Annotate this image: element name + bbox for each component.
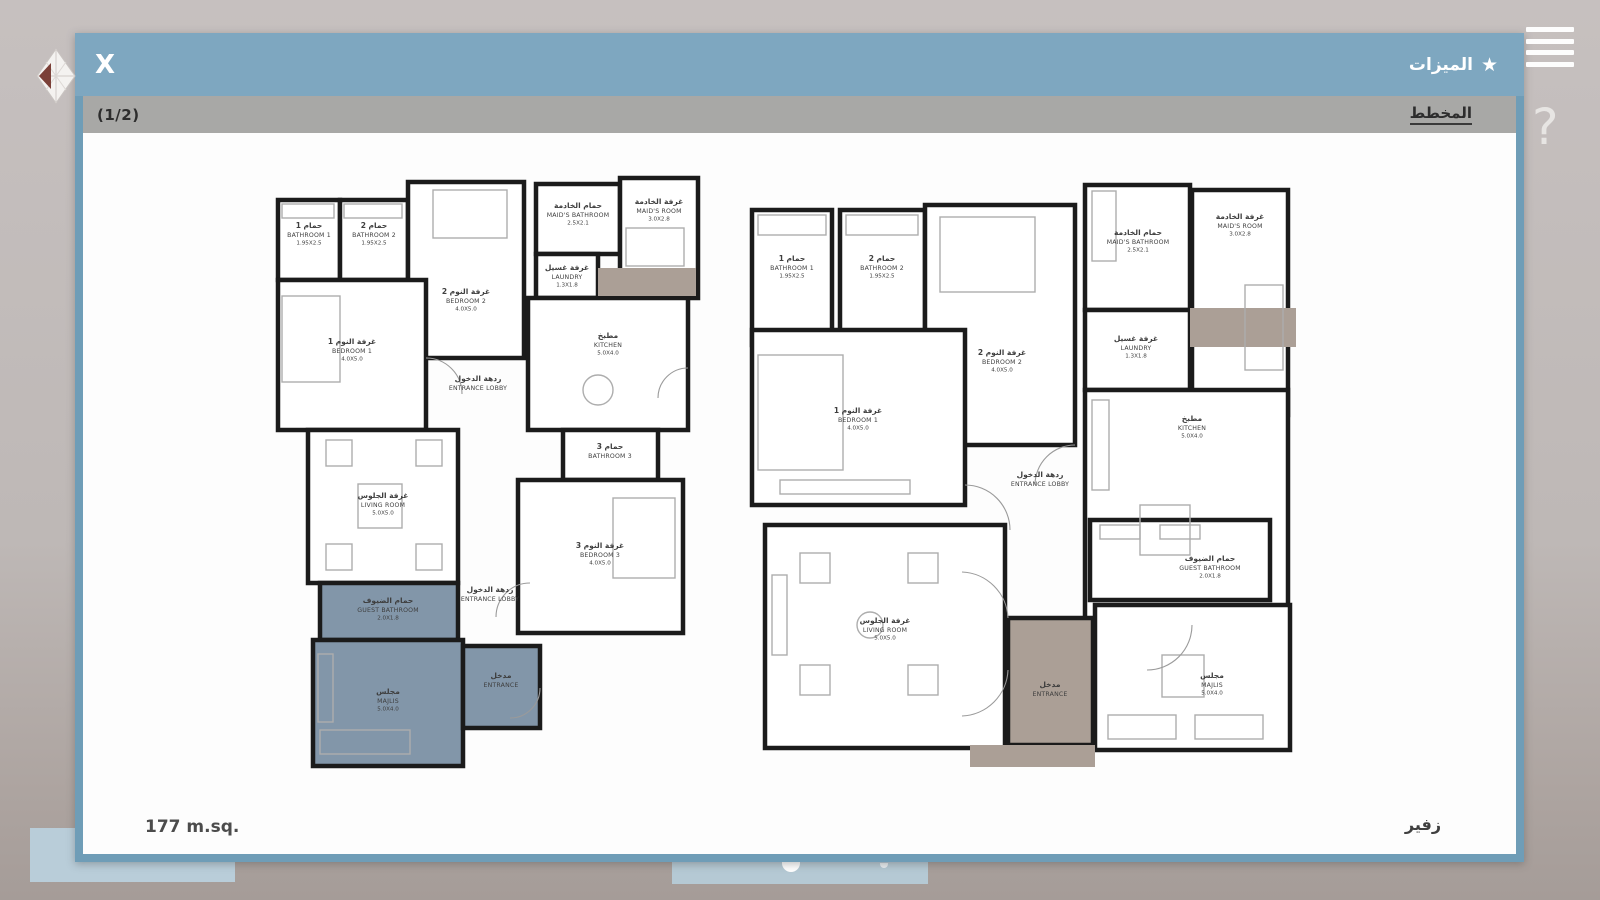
menu-bar [1526, 27, 1574, 32]
star-icon: ★ [1481, 54, 1498, 76]
room-maids-bathroom [536, 184, 620, 254]
room-bedroom-1 [278, 280, 426, 430]
right-floor-plan: حمام 1BATHROOM 11.95X2.5حمام 2BATHROOM 2… [740, 175, 1296, 767]
room-label: ردهة الدخولENTRANCE LOBBY [1011, 470, 1069, 488]
menu-bar [1526, 50, 1574, 55]
dialog-header: X الميزات ★ [75, 33, 1524, 96]
room-label: مطبخKITCHEN5.0X4.0 [1178, 414, 1206, 440]
porch-area [1190, 308, 1296, 347]
close-button[interactable]: X [95, 52, 115, 78]
porch-area [598, 268, 696, 296]
porch-area [970, 745, 1095, 767]
diamond-logo-icon [36, 48, 76, 108]
room-label: مطبخKITCHEN5.0X4.0 [594, 331, 622, 357]
background-toolbar-strip [672, 861, 928, 884]
room-label: مجلسMAJLIS5.0X4.0 [376, 687, 400, 713]
hamburger-menu-icon[interactable] [1526, 27, 1574, 67]
room-label: ردهة الدخولENTRANCE LOBBY [461, 585, 519, 603]
plan-viewer[interactable]: 177 m.sq. زفير حمام 1BATHROOM 11.95X2.5ح… [83, 133, 1516, 854]
features-button[interactable]: الميزات ★ [1409, 54, 1498, 76]
dialog-subheader: (1/2) المخطط [83, 96, 1516, 133]
room-label: ردهة الدخولENTRANCE LOBBY [449, 374, 507, 392]
room-guest-bathroom [1090, 520, 1270, 600]
pagination-label: (1/2) [97, 106, 140, 124]
tab-plan[interactable]: المخطط [1410, 104, 1472, 125]
features-label: الميزات [1409, 55, 1473, 75]
model-name-label: زفير [1383, 815, 1463, 834]
left-floor-plan: حمام 1BATHROOM 11.95X2.5حمام 2BATHROOM 2… [268, 168, 704, 772]
menu-bar [1526, 39, 1574, 44]
help-icon[interactable]: ? [1532, 102, 1559, 152]
menu-bar [1526, 62, 1574, 67]
door-arc [1035, 445, 1075, 485]
room-kitchen [528, 298, 688, 430]
strip-dot [880, 863, 888, 868]
room-label: مجلسMAJLIS5.0X4.0 [1200, 671, 1224, 697]
floor-plan-dialog: X الميزات ★ (1/2) المخطط 177 m.sq. زفير … [75, 33, 1524, 862]
area-label: 177 m.sq. [145, 817, 239, 837]
strip-notch [782, 862, 800, 872]
